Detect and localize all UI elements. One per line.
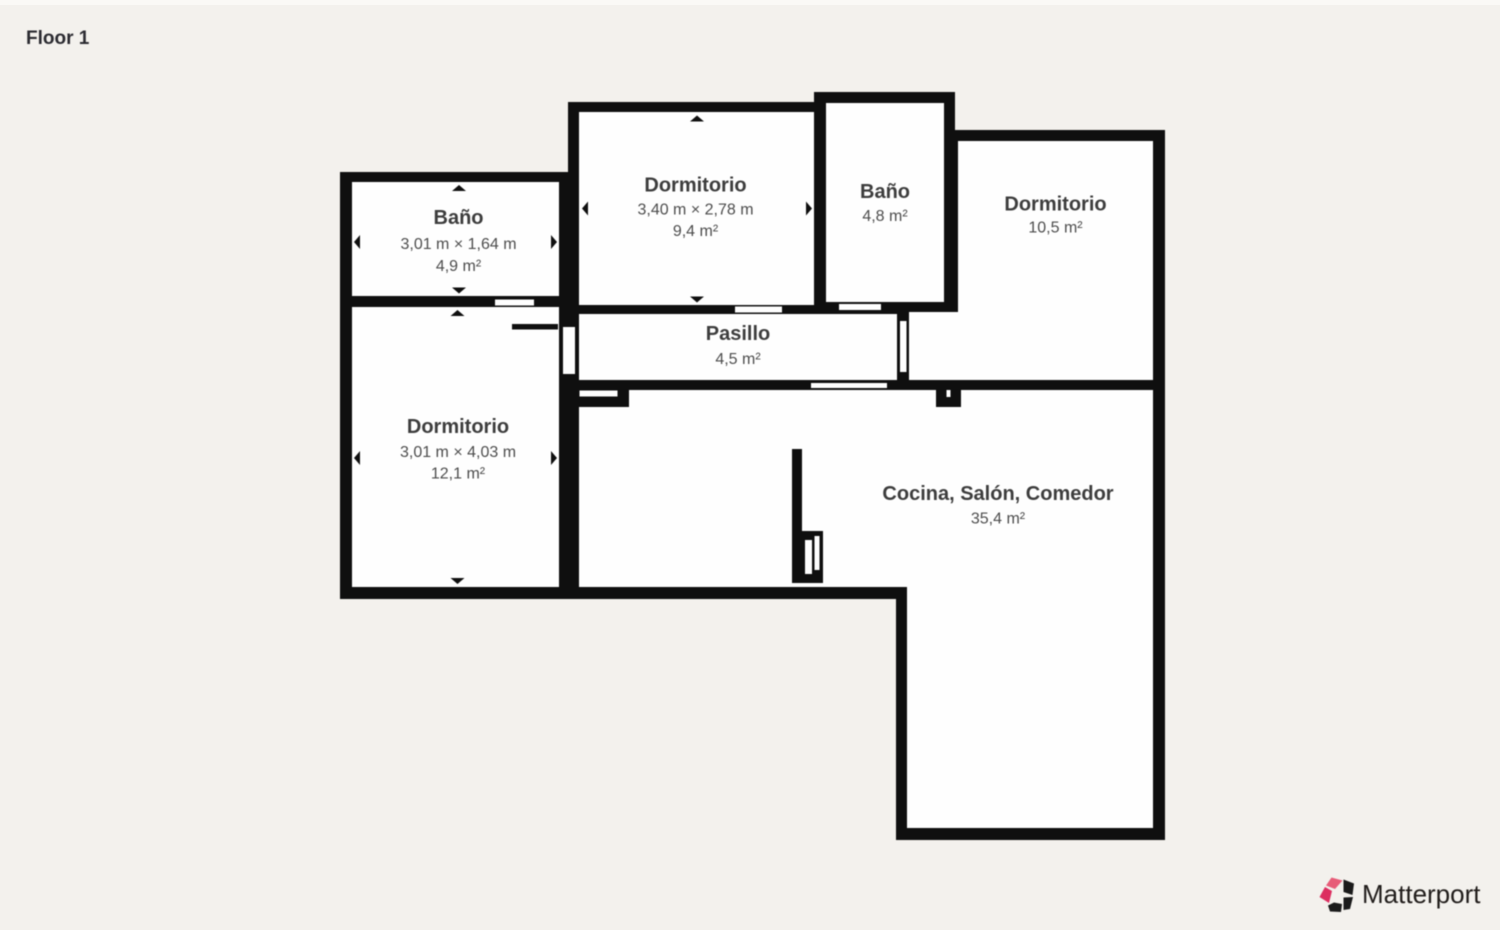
svg-text:3,01 m × 1,64 m: 3,01 m × 1,64 m	[400, 236, 516, 253]
svg-text:Cocina, Salón, Comedor: Cocina, Salón, Comedor	[882, 483, 1113, 505]
svg-text:Dormitorio: Dormitorio	[407, 416, 509, 438]
svg-text:4,9 m²: 4,9 m²	[436, 258, 482, 275]
svg-text:4,8 m²: 4,8 m²	[862, 208, 908, 225]
svg-text:Baño: Baño	[860, 181, 910, 203]
svg-text:12,1 m²: 12,1 m²	[431, 466, 486, 483]
svg-text:3,01 m × 4,03 m: 3,01 m × 4,03 m	[400, 444, 516, 461]
svg-text:9,4 m²: 9,4 m²	[673, 223, 719, 240]
svg-text:Baño: Baño	[434, 207, 484, 229]
svg-text:Dormitorio: Dormitorio	[644, 175, 746, 197]
svg-text:Dormitorio: Dormitorio	[1004, 194, 1106, 216]
svg-text:Pasillo: Pasillo	[706, 323, 770, 345]
svg-text:35,4 m²: 35,4 m²	[971, 511, 1026, 528]
svg-text:4,5 m²: 4,5 m²	[715, 351, 761, 368]
svg-text:Matterport: Matterport	[1362, 879, 1481, 909]
svg-text:10,5 m²: 10,5 m²	[1028, 220, 1083, 237]
svg-text:3,40 m × 2,78 m: 3,40 m × 2,78 m	[637, 202, 753, 219]
